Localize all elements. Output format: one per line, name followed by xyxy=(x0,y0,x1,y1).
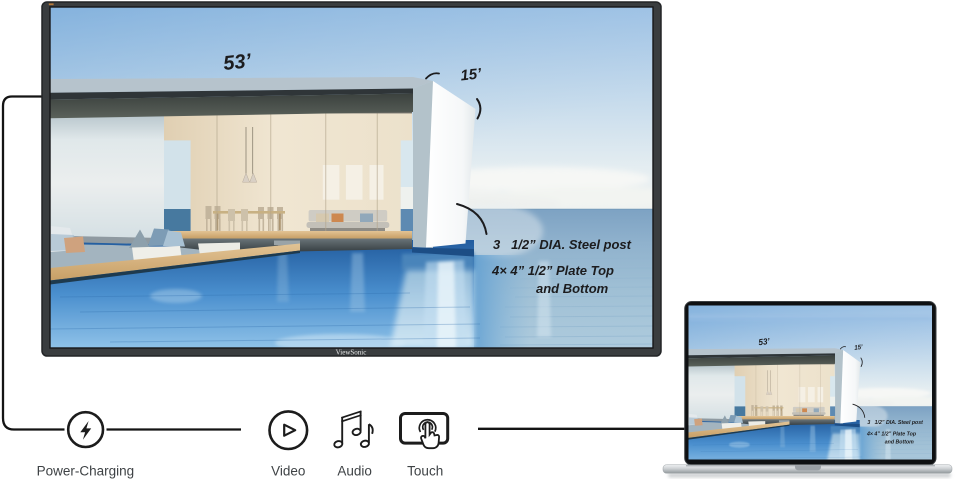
svg-text:Video: Video xyxy=(271,464,305,479)
svg-text:Audio: Audio xyxy=(337,464,372,479)
svg-text:ViewSonic: ViewSonic xyxy=(336,349,367,357)
svg-text:Touch: Touch xyxy=(407,464,443,479)
svg-text:Power-Charging: Power-Charging xyxy=(37,464,135,479)
